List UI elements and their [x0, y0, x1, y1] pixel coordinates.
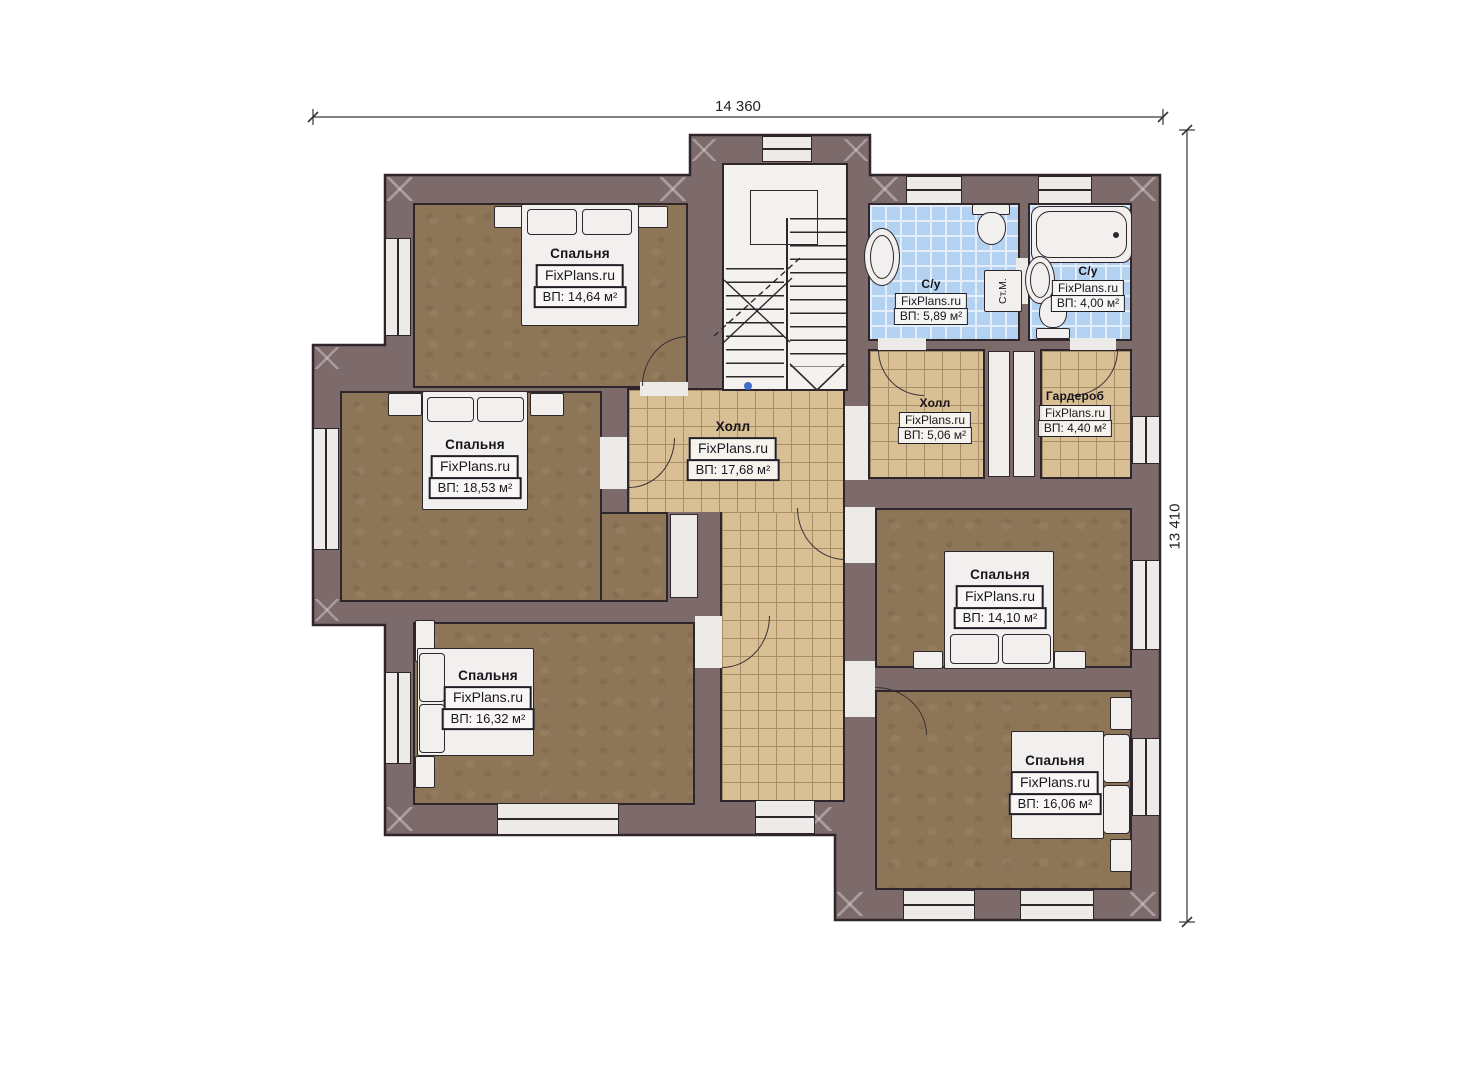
nightstand [1110, 697, 1132, 730]
toilet-tank [1036, 328, 1070, 339]
sink-basin [870, 235, 894, 279]
room-name: Спальня [458, 668, 518, 683]
stairs-flight-right [790, 218, 846, 367]
watermark-box: FixPlans.ru [536, 264, 624, 288]
wall-hatch [315, 347, 339, 369]
room-label-bedroom-ml: Спальня FixPlans.ru ВП: 18,53 м² [429, 437, 522, 499]
wall-hatch [837, 892, 863, 916]
window [906, 176, 962, 204]
pillow [1002, 634, 1051, 664]
stairwell [722, 163, 848, 391]
room-label-bedroom-mr: Спальня FixPlans.ru ВП: 14,10 м² [954, 567, 1047, 629]
window [1038, 176, 1092, 204]
room-name: С/у [921, 277, 940, 291]
window [1132, 560, 1160, 650]
area-box: ВП: 4,00 м² [1051, 295, 1125, 312]
door-opening [695, 616, 722, 668]
wall-hatch [387, 807, 413, 831]
wall-hatch [315, 599, 339, 621]
room-label-hall-small: Холл FixPlans.ru ВП: 5,06 м² [898, 396, 972, 444]
door-opening [845, 661, 875, 717]
room-label-bedroom-bl: Спальня FixPlans.ru ВП: 16,32 м² [442, 668, 535, 730]
toilet-bowl [977, 212, 1006, 245]
nightstand [913, 651, 943, 669]
nightstand [530, 393, 564, 416]
wall-hatch [872, 177, 898, 201]
room-name: Спальня [970, 567, 1030, 582]
window [903, 890, 975, 920]
room-label-bath-small: С/у FixPlans.ru ВП: 4,00 м² [1051, 264, 1125, 312]
nightstand [1110, 839, 1132, 872]
bedroom-ml-floor-ext [600, 512, 668, 602]
window [1020, 890, 1094, 920]
area-box: ВП: 14,64 м² [534, 286, 627, 308]
area-box: ВП: 5,89 м² [894, 308, 968, 325]
pillow [527, 209, 577, 235]
stairs-reference-dot [744, 382, 752, 390]
stairs-flight-left [726, 268, 784, 390]
window [1132, 416, 1160, 464]
area-box: ВП: 16,32 м² [442, 708, 535, 730]
nightstand [638, 206, 668, 228]
nightstand [415, 756, 435, 788]
window [313, 428, 339, 550]
window-stairwell [762, 136, 812, 162]
window [385, 672, 411, 764]
window [1132, 738, 1160, 816]
room-label-bedroom-tl: Спальня FixPlans.ru ВП: 14,64 м² [534, 246, 627, 308]
closet-shaft [1013, 351, 1035, 477]
room-name: Спальня [550, 246, 610, 261]
room-label-bedroom-br: Спальня FixPlans.ru ВП: 16,06 м² [1009, 753, 1102, 815]
room-label-wardrobe: Гардероб FixPlans.ru ВП: 4,40 м² [1038, 389, 1112, 437]
door-opening [1070, 338, 1116, 350]
closet-shaft [988, 351, 1010, 477]
room-name: Спальня [1025, 753, 1085, 768]
room-label-hall-main: Холл FixPlans.ru ВП: 17,68 м² [687, 419, 780, 481]
area-box: ВП: 16,06 м² [1009, 793, 1102, 815]
wall-hatch [844, 139, 868, 161]
door-opening [878, 338, 926, 350]
door-opening [600, 437, 627, 489]
sink-basin [1030, 262, 1050, 298]
area-box: ВП: 18,53 м² [429, 477, 522, 499]
area-box: ВП: 17,68 м² [687, 459, 780, 481]
pillow [427, 397, 474, 422]
stairs-divider [786, 218, 788, 390]
door-opening [845, 406, 868, 480]
pillow [1103, 734, 1130, 783]
dimension-top-label: 14 360 [715, 98, 761, 115]
room-label-bath-large: С/у FixPlans.ru ВП: 5,89 м² [894, 277, 968, 325]
window [755, 800, 815, 834]
pillow [582, 209, 632, 235]
bathtub [1031, 206, 1132, 263]
pillow [950, 634, 999, 664]
pillow [1103, 785, 1130, 834]
wall-hatch [387, 177, 413, 201]
nightstand [388, 393, 422, 416]
room-name: Холл [920, 396, 951, 410]
watermark-box: FixPlans.ru [444, 686, 532, 710]
window [497, 803, 619, 835]
wall-hatch [1130, 177, 1156, 201]
room-name: Гардероб [1046, 389, 1104, 403]
pillow [477, 397, 524, 422]
watermark-box: FixPlans.ru [956, 585, 1044, 609]
nightstand [1054, 651, 1086, 669]
watermark-box: FixPlans.ru [1011, 771, 1099, 795]
washing-machine-label: Ст.М. [984, 270, 1022, 312]
door-opening [670, 514, 698, 598]
wall-hatch [692, 139, 716, 161]
wall-hatch [660, 177, 686, 201]
bathtub-drain [1113, 232, 1119, 238]
watermark-box: FixPlans.ru [689, 437, 777, 461]
area-box: ВП: 4,40 м² [1038, 420, 1112, 437]
room-name: Спальня [445, 437, 505, 452]
room-name: Холл [716, 419, 751, 434]
door-opening [845, 507, 875, 563]
window [385, 238, 411, 336]
floor-plan: 14 360 13 410 [0, 0, 1473, 1080]
dimension-right-label: 13 410 [1166, 504, 1183, 550]
area-box: ВП: 5,06 м² [898, 427, 972, 444]
watermark-box: FixPlans.ru [431, 455, 519, 479]
area-box: ВП: 14,10 м² [954, 607, 1047, 629]
room-name: С/у [1078, 264, 1097, 278]
wall-hatch [1130, 892, 1156, 916]
